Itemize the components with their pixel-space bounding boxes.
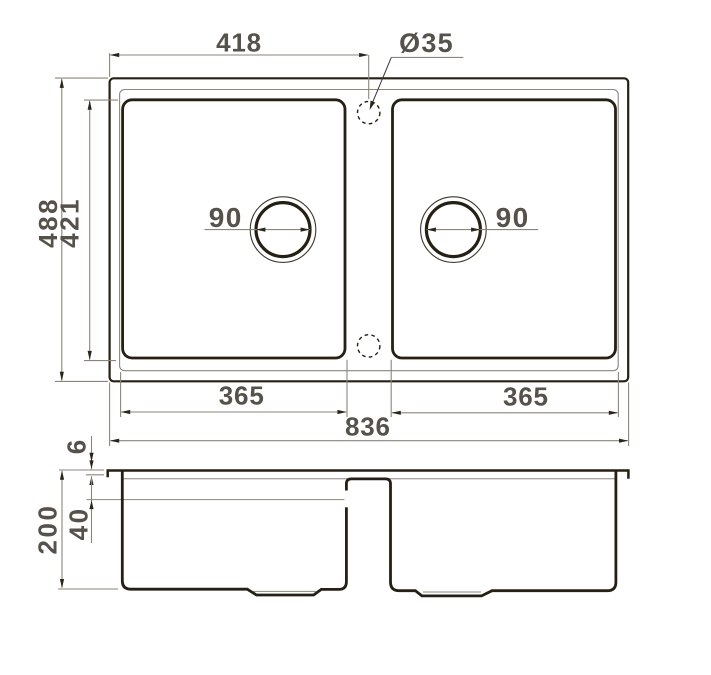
svg-text:418: 418 [216, 28, 262, 58]
svg-text:836: 836 [345, 411, 391, 441]
svg-text:Ø35: Ø35 [399, 28, 454, 58]
svg-text:421: 421 [54, 197, 84, 248]
svg-text:365: 365 [219, 381, 265, 411]
svg-text:6: 6 [62, 440, 92, 454]
svg-text:90: 90 [209, 202, 243, 233]
svg-text:90: 90 [496, 202, 530, 233]
svg-text:200: 200 [33, 504, 63, 555]
svg-text:40: 40 [64, 506, 94, 540]
svg-text:365: 365 [503, 382, 549, 412]
